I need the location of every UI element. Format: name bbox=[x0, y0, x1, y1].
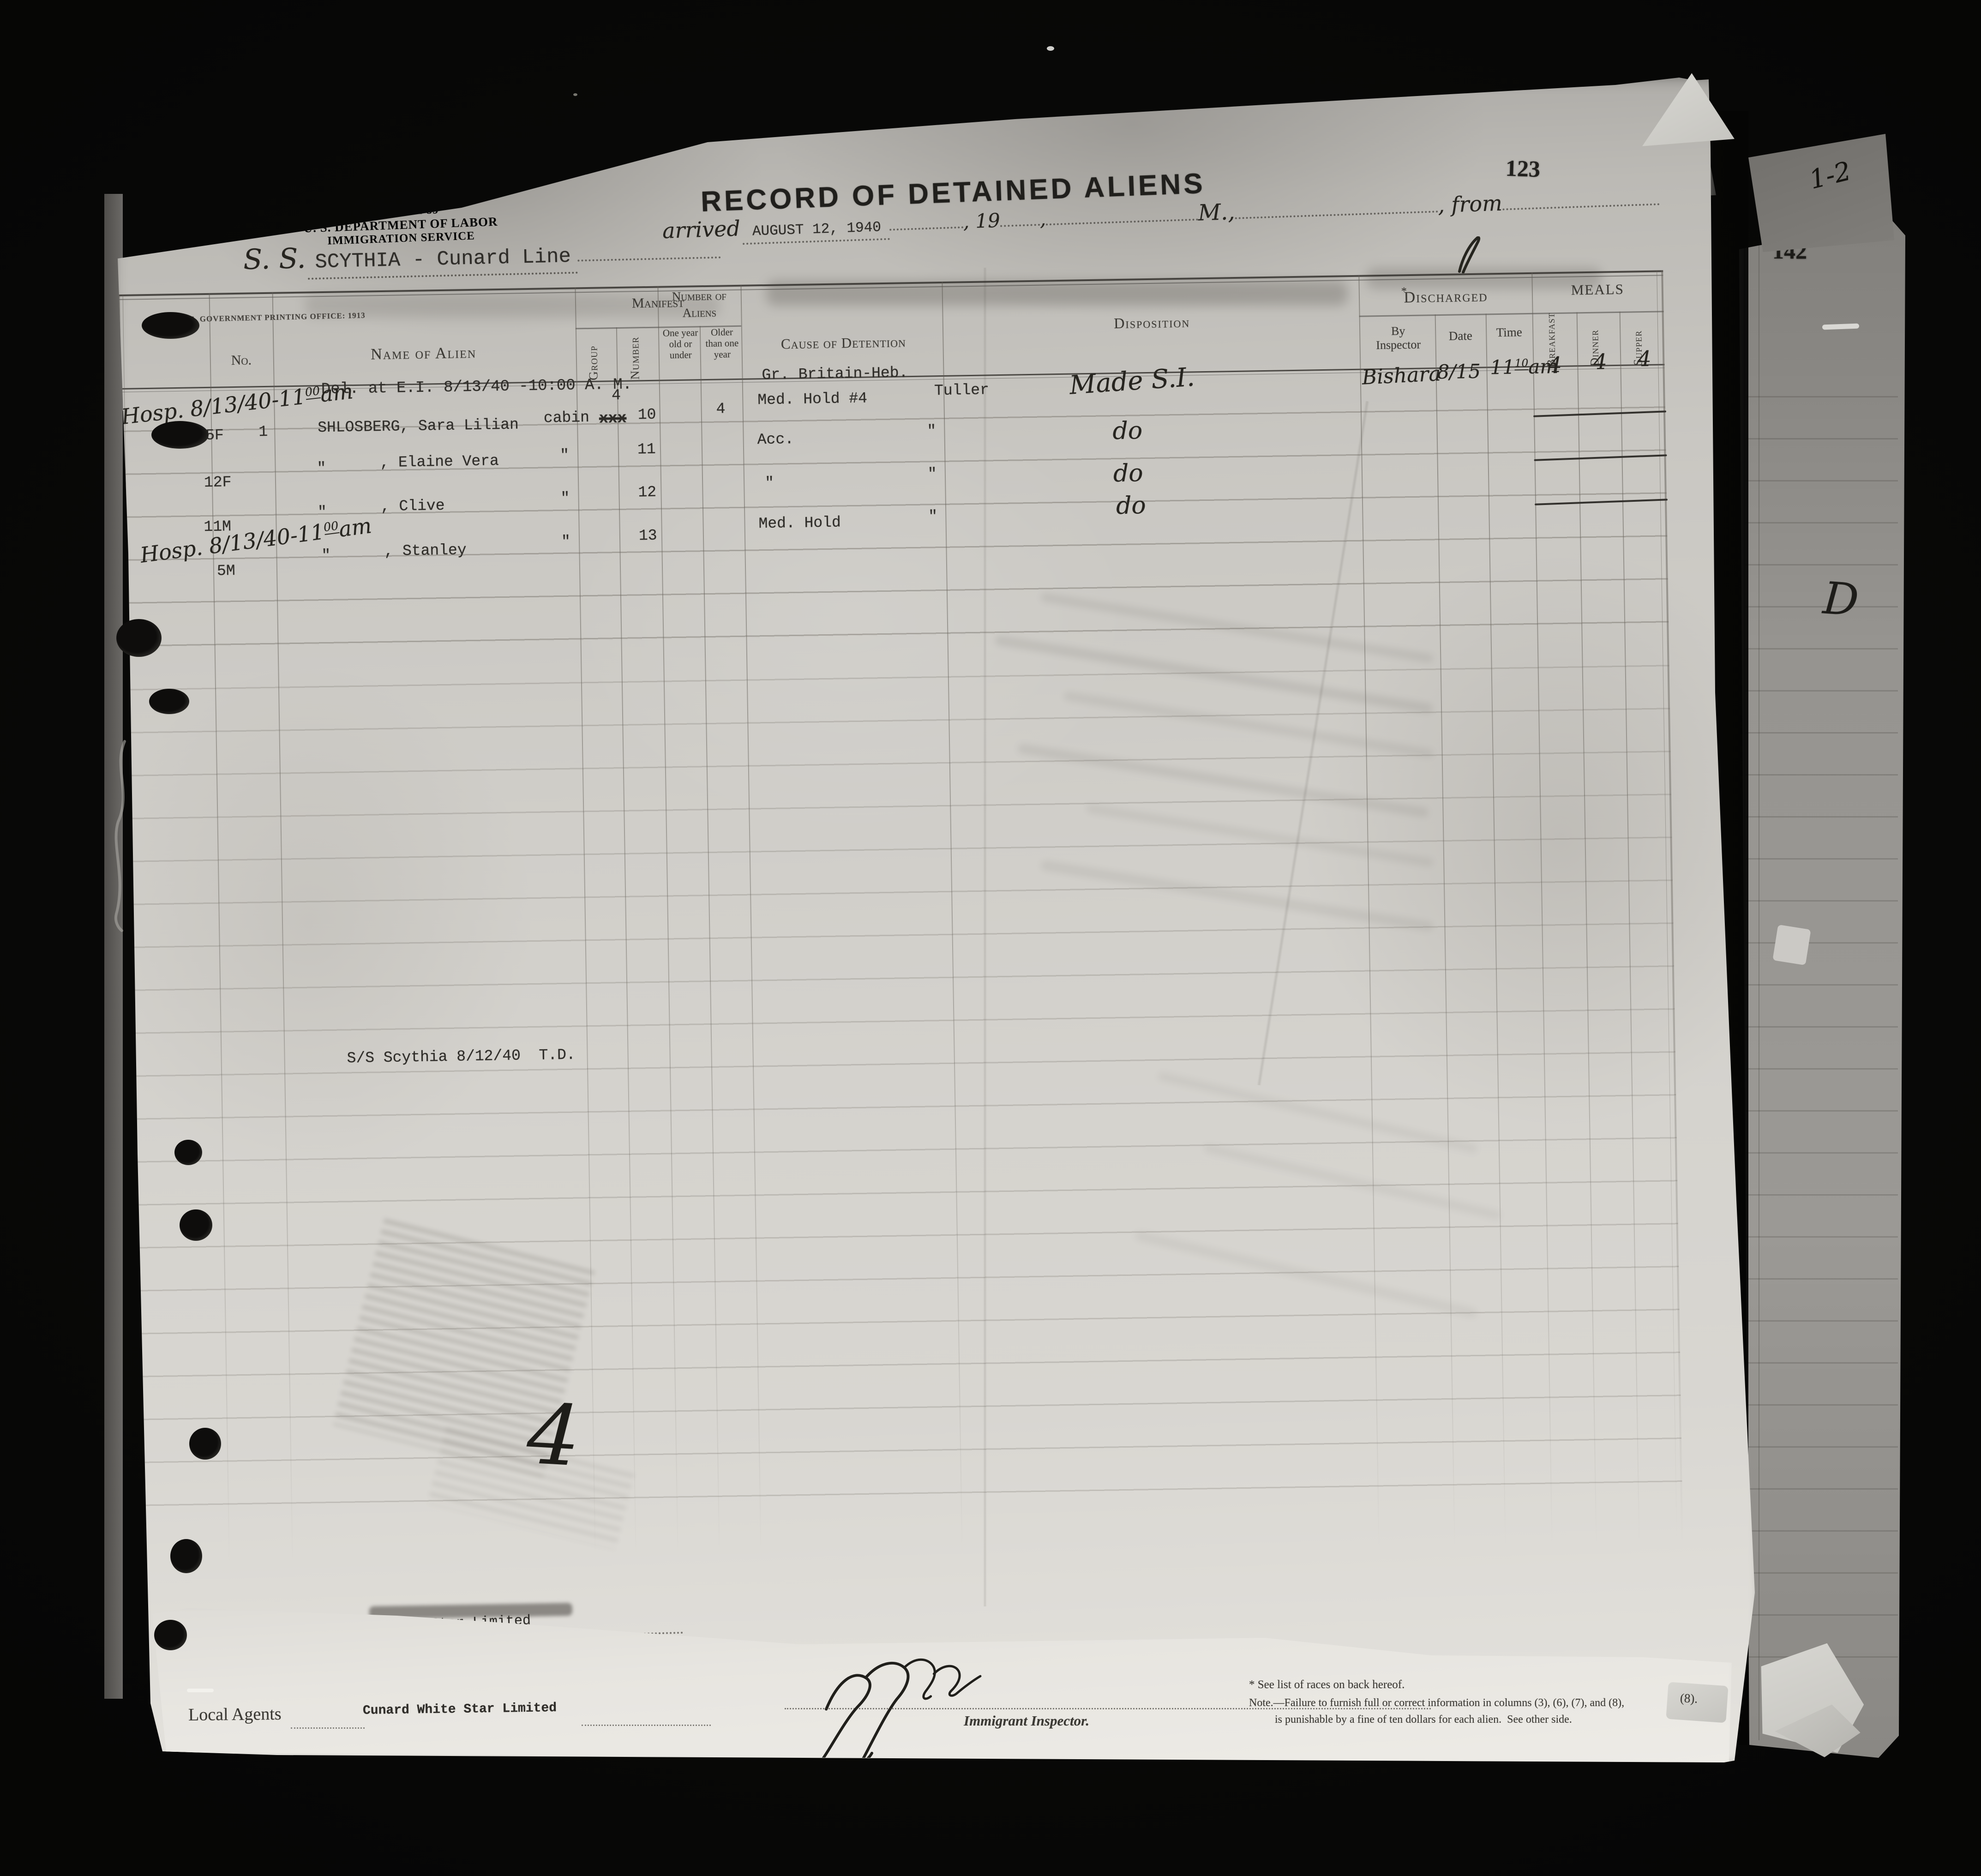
handwritten-number-4: 4 bbox=[525, 1386, 583, 1485]
col-header-disposition: Disposition bbox=[945, 311, 1359, 335]
inspector-signature bbox=[809, 1641, 1010, 1770]
from-label: , from bbox=[1437, 191, 1502, 218]
col-header-aliens-2: Aliens bbox=[658, 305, 741, 321]
col-header-meals: MEALS bbox=[1532, 280, 1664, 299]
torn-scrap bbox=[1772, 925, 1811, 965]
underlying-page-right: 142 D bbox=[1736, 217, 1905, 1759]
row1-group-corrected: 4 bbox=[612, 387, 621, 404]
row4-class-ditto: " bbox=[561, 533, 570, 550]
row-lines bbox=[124, 623, 1682, 1524]
footnote-warning-1: Note.—Failure to furnish full or correct… bbox=[1249, 1697, 1624, 1709]
row-lines bbox=[120, 365, 1669, 648]
col-header-name: Name of Alien bbox=[322, 343, 525, 364]
table-rule bbox=[1359, 311, 1664, 317]
row3-inspector-ditto: " bbox=[928, 465, 937, 482]
document-page: N. Y. Form 89 U. S. DEPARTMENT OF LABOR … bbox=[111, 74, 1759, 1773]
row2-manifest-number: 11 bbox=[637, 441, 656, 458]
row2-inspector-ditto: " bbox=[927, 422, 936, 439]
row2-disposition: do bbox=[1112, 417, 1143, 445]
col-header-cause: Cause of Detention bbox=[744, 333, 943, 353]
year-label: , 19 bbox=[963, 209, 1001, 233]
row3-manifest-number: 12 bbox=[638, 484, 656, 501]
row4-disposition: do bbox=[1116, 492, 1147, 520]
mid-page-note: S/S Scythia 8/12/40 T.D. bbox=[347, 1046, 576, 1067]
col-header-number: Number bbox=[627, 328, 642, 379]
punch-hole bbox=[174, 1140, 202, 1165]
punch-hole bbox=[149, 689, 189, 714]
punch-hole bbox=[316, 177, 345, 210]
row3-name: , Clive bbox=[381, 497, 445, 515]
detained-aliens-table: No. Name of Alien Manifest Number of Ali… bbox=[118, 253, 1687, 1661]
page-number-stamp: 123 bbox=[1505, 155, 1541, 183]
col-header-group: Group bbox=[586, 331, 601, 380]
col-header-one-year: One year old or under bbox=[660, 327, 701, 361]
white-scratch bbox=[187, 1689, 214, 1692]
row1-name: SHLOSBERG, Sara Lilian bbox=[318, 416, 519, 436]
row1-discharged-date: 8/15 bbox=[1437, 360, 1481, 383]
row1-inspector: Tuller bbox=[934, 381, 989, 399]
white-scratch bbox=[1822, 324, 1859, 330]
punch-hole bbox=[151, 421, 209, 449]
local-agents-value: Cunard White Star Limited bbox=[363, 1701, 557, 1718]
ship-prefix: S. S. bbox=[243, 242, 306, 276]
footnote-warning-2: is punishable by a fine of ten dollars f… bbox=[1275, 1714, 1572, 1726]
row2-name: , Elaine Vera bbox=[380, 452, 499, 471]
row4-manifest-number: 13 bbox=[639, 527, 657, 545]
col-header-time: Time bbox=[1486, 325, 1532, 340]
row1-no: 1 bbox=[258, 423, 268, 440]
footnote-races: * See list of races on back hereof. bbox=[1249, 1678, 1405, 1691]
col-header-older: Older than one year bbox=[702, 326, 742, 360]
dust-speck bbox=[1047, 46, 1054, 51]
row4-name-ditto: " bbox=[321, 547, 330, 564]
edge-scribble bbox=[107, 739, 139, 932]
punch-hole bbox=[170, 1539, 202, 1573]
dust-speck bbox=[573, 93, 577, 96]
row3-disposition: do bbox=[1113, 459, 1143, 487]
row4-inspector-ditto: " bbox=[928, 508, 937, 525]
race-note: Gr. Britain-Heb. bbox=[762, 364, 908, 384]
row2-age-sex: 12F bbox=[204, 474, 232, 491]
row4-age-sex: 5M bbox=[217, 562, 235, 580]
arrival-date-value: AUGUST 12, 1940 bbox=[742, 219, 889, 245]
scan-canvas: 142 D 1-2 N. Y. Form 89 U. S. DEPARTMENT… bbox=[0, 0, 1981, 1876]
row1-breakfast: 4 bbox=[1548, 352, 1562, 377]
punch-hole bbox=[180, 1209, 212, 1241]
col-header-date: Date bbox=[1435, 328, 1486, 343]
row4-cause: Med. Hold bbox=[758, 514, 841, 532]
col-header-no: No. bbox=[223, 352, 260, 368]
row2-name-ditto: " bbox=[317, 460, 326, 477]
agents-dotted-line2 bbox=[582, 1725, 711, 1726]
local-agents-label: Local Agents bbox=[188, 1704, 282, 1725]
punch-hole bbox=[154, 1620, 187, 1650]
row1-manifest-number: 10 bbox=[638, 406, 656, 424]
agents-dotted-line bbox=[291, 1727, 365, 1729]
row4-name: , Stanley bbox=[384, 541, 467, 560]
row3-cause-ditto: " bbox=[765, 475, 774, 492]
corner-fragment-text: (8). bbox=[1680, 1691, 1698, 1706]
inspector-label: Immigrant Inspector. bbox=[964, 1713, 1089, 1729]
punch-hole bbox=[189, 1428, 221, 1460]
row1-dinner: 4 bbox=[1593, 349, 1607, 374]
row2-cause: Acc. bbox=[757, 431, 794, 448]
row1-supper: 4 bbox=[1638, 346, 1651, 371]
meridiem-label: M., bbox=[1198, 199, 1235, 226]
page-stack-left-edge bbox=[104, 194, 123, 1699]
row1-cause: Med. Hold #4 bbox=[757, 390, 867, 409]
punch-hole bbox=[142, 312, 199, 339]
row1-discharged-by: Bishara bbox=[1362, 362, 1441, 390]
col-header-aliens-1: Number of bbox=[658, 289, 741, 304]
row1-group-struck: xxx bbox=[599, 410, 627, 427]
ruled-lines-ghost bbox=[1746, 355, 1898, 1694]
row2-class-ditto: " bbox=[560, 447, 569, 464]
col-header-discharged: Discharged bbox=[1360, 287, 1532, 307]
punch-hole bbox=[116, 619, 162, 657]
row1-class: cabin bbox=[544, 409, 590, 427]
side-letter-annotation: D bbox=[1821, 572, 1861, 626]
row1-older: 4 bbox=[716, 400, 725, 417]
col-header-by-inspector: By Inspector bbox=[1372, 324, 1424, 353]
row3-class-ditto: " bbox=[560, 490, 570, 507]
